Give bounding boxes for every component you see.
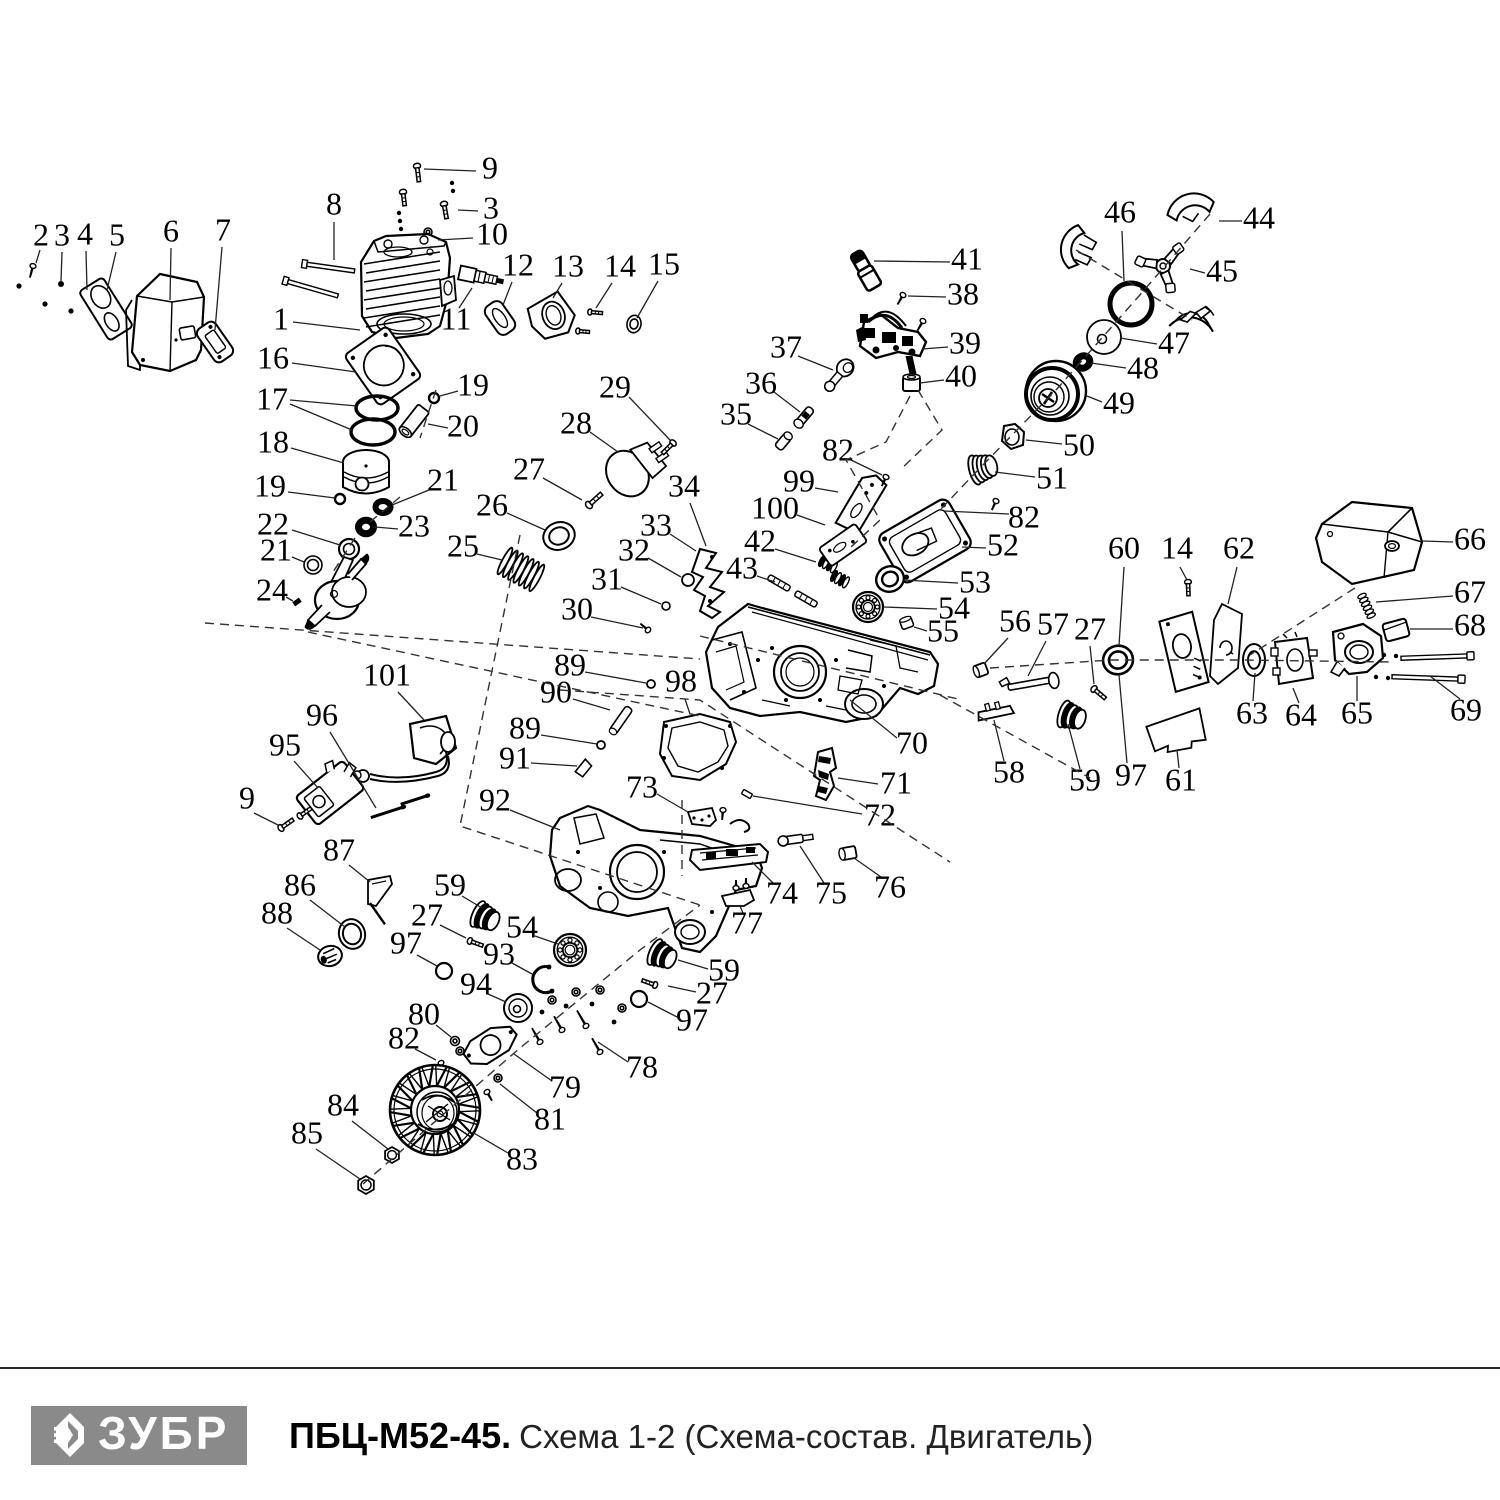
- svg-text:98: 98: [665, 662, 697, 698]
- svg-text:60: 60: [1108, 529, 1140, 565]
- svg-text:9: 9: [482, 149, 498, 185]
- svg-text:38: 38: [947, 275, 979, 311]
- svg-text:2: 2: [33, 216, 49, 252]
- svg-text:65: 65: [1341, 694, 1373, 730]
- svg-text:70: 70: [896, 724, 928, 760]
- svg-text:49: 49: [1103, 384, 1135, 420]
- svg-text:72: 72: [864, 796, 896, 832]
- svg-text:83: 83: [506, 1140, 538, 1176]
- svg-text:58: 58: [993, 753, 1025, 789]
- svg-text:25: 25: [447, 527, 479, 563]
- svg-text:55: 55: [927, 612, 959, 648]
- svg-text:85: 85: [291, 1114, 323, 1150]
- svg-text:24: 24: [256, 571, 288, 607]
- svg-text:3: 3: [54, 216, 70, 252]
- svg-text:8: 8: [326, 185, 342, 221]
- svg-text:82: 82: [388, 1019, 420, 1055]
- svg-text:84: 84: [327, 1086, 359, 1122]
- svg-text:69: 69: [1450, 691, 1482, 727]
- svg-text:73: 73: [626, 768, 658, 804]
- svg-text:100: 100: [751, 489, 799, 525]
- svg-text:1: 1: [273, 300, 289, 336]
- svg-text:79: 79: [549, 1068, 581, 1104]
- svg-text:27: 27: [513, 450, 545, 486]
- svg-text:68: 68: [1454, 606, 1486, 642]
- svg-text:30: 30: [561, 590, 593, 626]
- svg-text:46: 46: [1104, 193, 1136, 229]
- svg-text:95: 95: [269, 726, 301, 762]
- svg-text:91: 91: [499, 739, 531, 775]
- svg-text:40: 40: [945, 357, 977, 393]
- svg-text:41: 41: [951, 240, 983, 276]
- svg-text:82: 82: [822, 431, 854, 467]
- svg-text:94: 94: [460, 965, 492, 1001]
- svg-text:19: 19: [457, 366, 489, 402]
- svg-text:51: 51: [1036, 459, 1068, 495]
- svg-text:18: 18: [257, 423, 289, 459]
- svg-text:56: 56: [999, 602, 1031, 638]
- svg-text:44: 44: [1243, 199, 1275, 235]
- svg-text:ПБЦ-М52-45.Схема 1-2 (Схема-со: ПБЦ-М52-45.Схема 1-2 (Схема-состав. Двиг…: [289, 1415, 1093, 1456]
- svg-text:29: 29: [599, 368, 631, 404]
- svg-text:63: 63: [1236, 694, 1268, 730]
- svg-text:39: 39: [949, 324, 981, 360]
- svg-text:35: 35: [720, 395, 752, 431]
- svg-text:21: 21: [427, 461, 459, 497]
- svg-text:97: 97: [390, 924, 422, 960]
- svg-text:43: 43: [726, 549, 758, 585]
- svg-text:75: 75: [815, 874, 847, 910]
- svg-text:74: 74: [766, 874, 798, 910]
- svg-text:62: 62: [1223, 529, 1255, 565]
- svg-text:21: 21: [260, 531, 292, 567]
- svg-text:26: 26: [476, 486, 508, 522]
- svg-text:34: 34: [668, 467, 700, 503]
- svg-text:37: 37: [770, 328, 802, 364]
- svg-text:15: 15: [648, 245, 680, 281]
- svg-text:5: 5: [109, 216, 125, 252]
- svg-text:27: 27: [1074, 610, 1106, 646]
- svg-text:14: 14: [604, 247, 636, 283]
- svg-text:64: 64: [1285, 696, 1317, 732]
- svg-text:47: 47: [1158, 324, 1190, 360]
- svg-text:90: 90: [540, 673, 572, 709]
- svg-text:16: 16: [257, 339, 289, 375]
- svg-text:52: 52: [987, 526, 1019, 562]
- svg-text:ЗУБР: ЗУБР: [98, 1407, 229, 1459]
- svg-text:9: 9: [239, 779, 255, 815]
- svg-text:92: 92: [479, 781, 511, 817]
- svg-text:97: 97: [1115, 756, 1147, 792]
- svg-text:88: 88: [261, 894, 293, 930]
- svg-text:57: 57: [1037, 605, 1069, 641]
- svg-text:59: 59: [1069, 761, 1101, 797]
- svg-text:13: 13: [552, 247, 584, 283]
- svg-text:97: 97: [676, 1001, 708, 1037]
- svg-text:6: 6: [163, 212, 179, 248]
- svg-text:96: 96: [306, 696, 338, 732]
- svg-text:87: 87: [323, 831, 355, 867]
- svg-text:14: 14: [1161, 529, 1193, 565]
- svg-text:77: 77: [731, 904, 763, 940]
- svg-text:81: 81: [534, 1100, 566, 1136]
- svg-text:31: 31: [591, 560, 623, 596]
- svg-text:7: 7: [215, 211, 231, 247]
- svg-text:67: 67: [1454, 573, 1486, 609]
- svg-text:66: 66: [1454, 520, 1486, 556]
- svg-text:19: 19: [254, 467, 286, 503]
- svg-text:17: 17: [256, 380, 288, 416]
- svg-text:50: 50: [1063, 426, 1095, 462]
- svg-text:28: 28: [560, 404, 592, 440]
- svg-text:76: 76: [874, 868, 906, 904]
- svg-text:71: 71: [880, 764, 912, 800]
- svg-text:11: 11: [441, 300, 472, 336]
- svg-text:48: 48: [1127, 349, 1159, 385]
- svg-text:61: 61: [1165, 761, 1197, 797]
- svg-text:45: 45: [1206, 252, 1238, 288]
- svg-text:78: 78: [626, 1048, 658, 1084]
- svg-text:23: 23: [398, 507, 430, 543]
- svg-text:12: 12: [502, 246, 534, 282]
- svg-text:101: 101: [363, 656, 411, 692]
- svg-text:20: 20: [447, 407, 479, 443]
- svg-text:4: 4: [77, 215, 93, 251]
